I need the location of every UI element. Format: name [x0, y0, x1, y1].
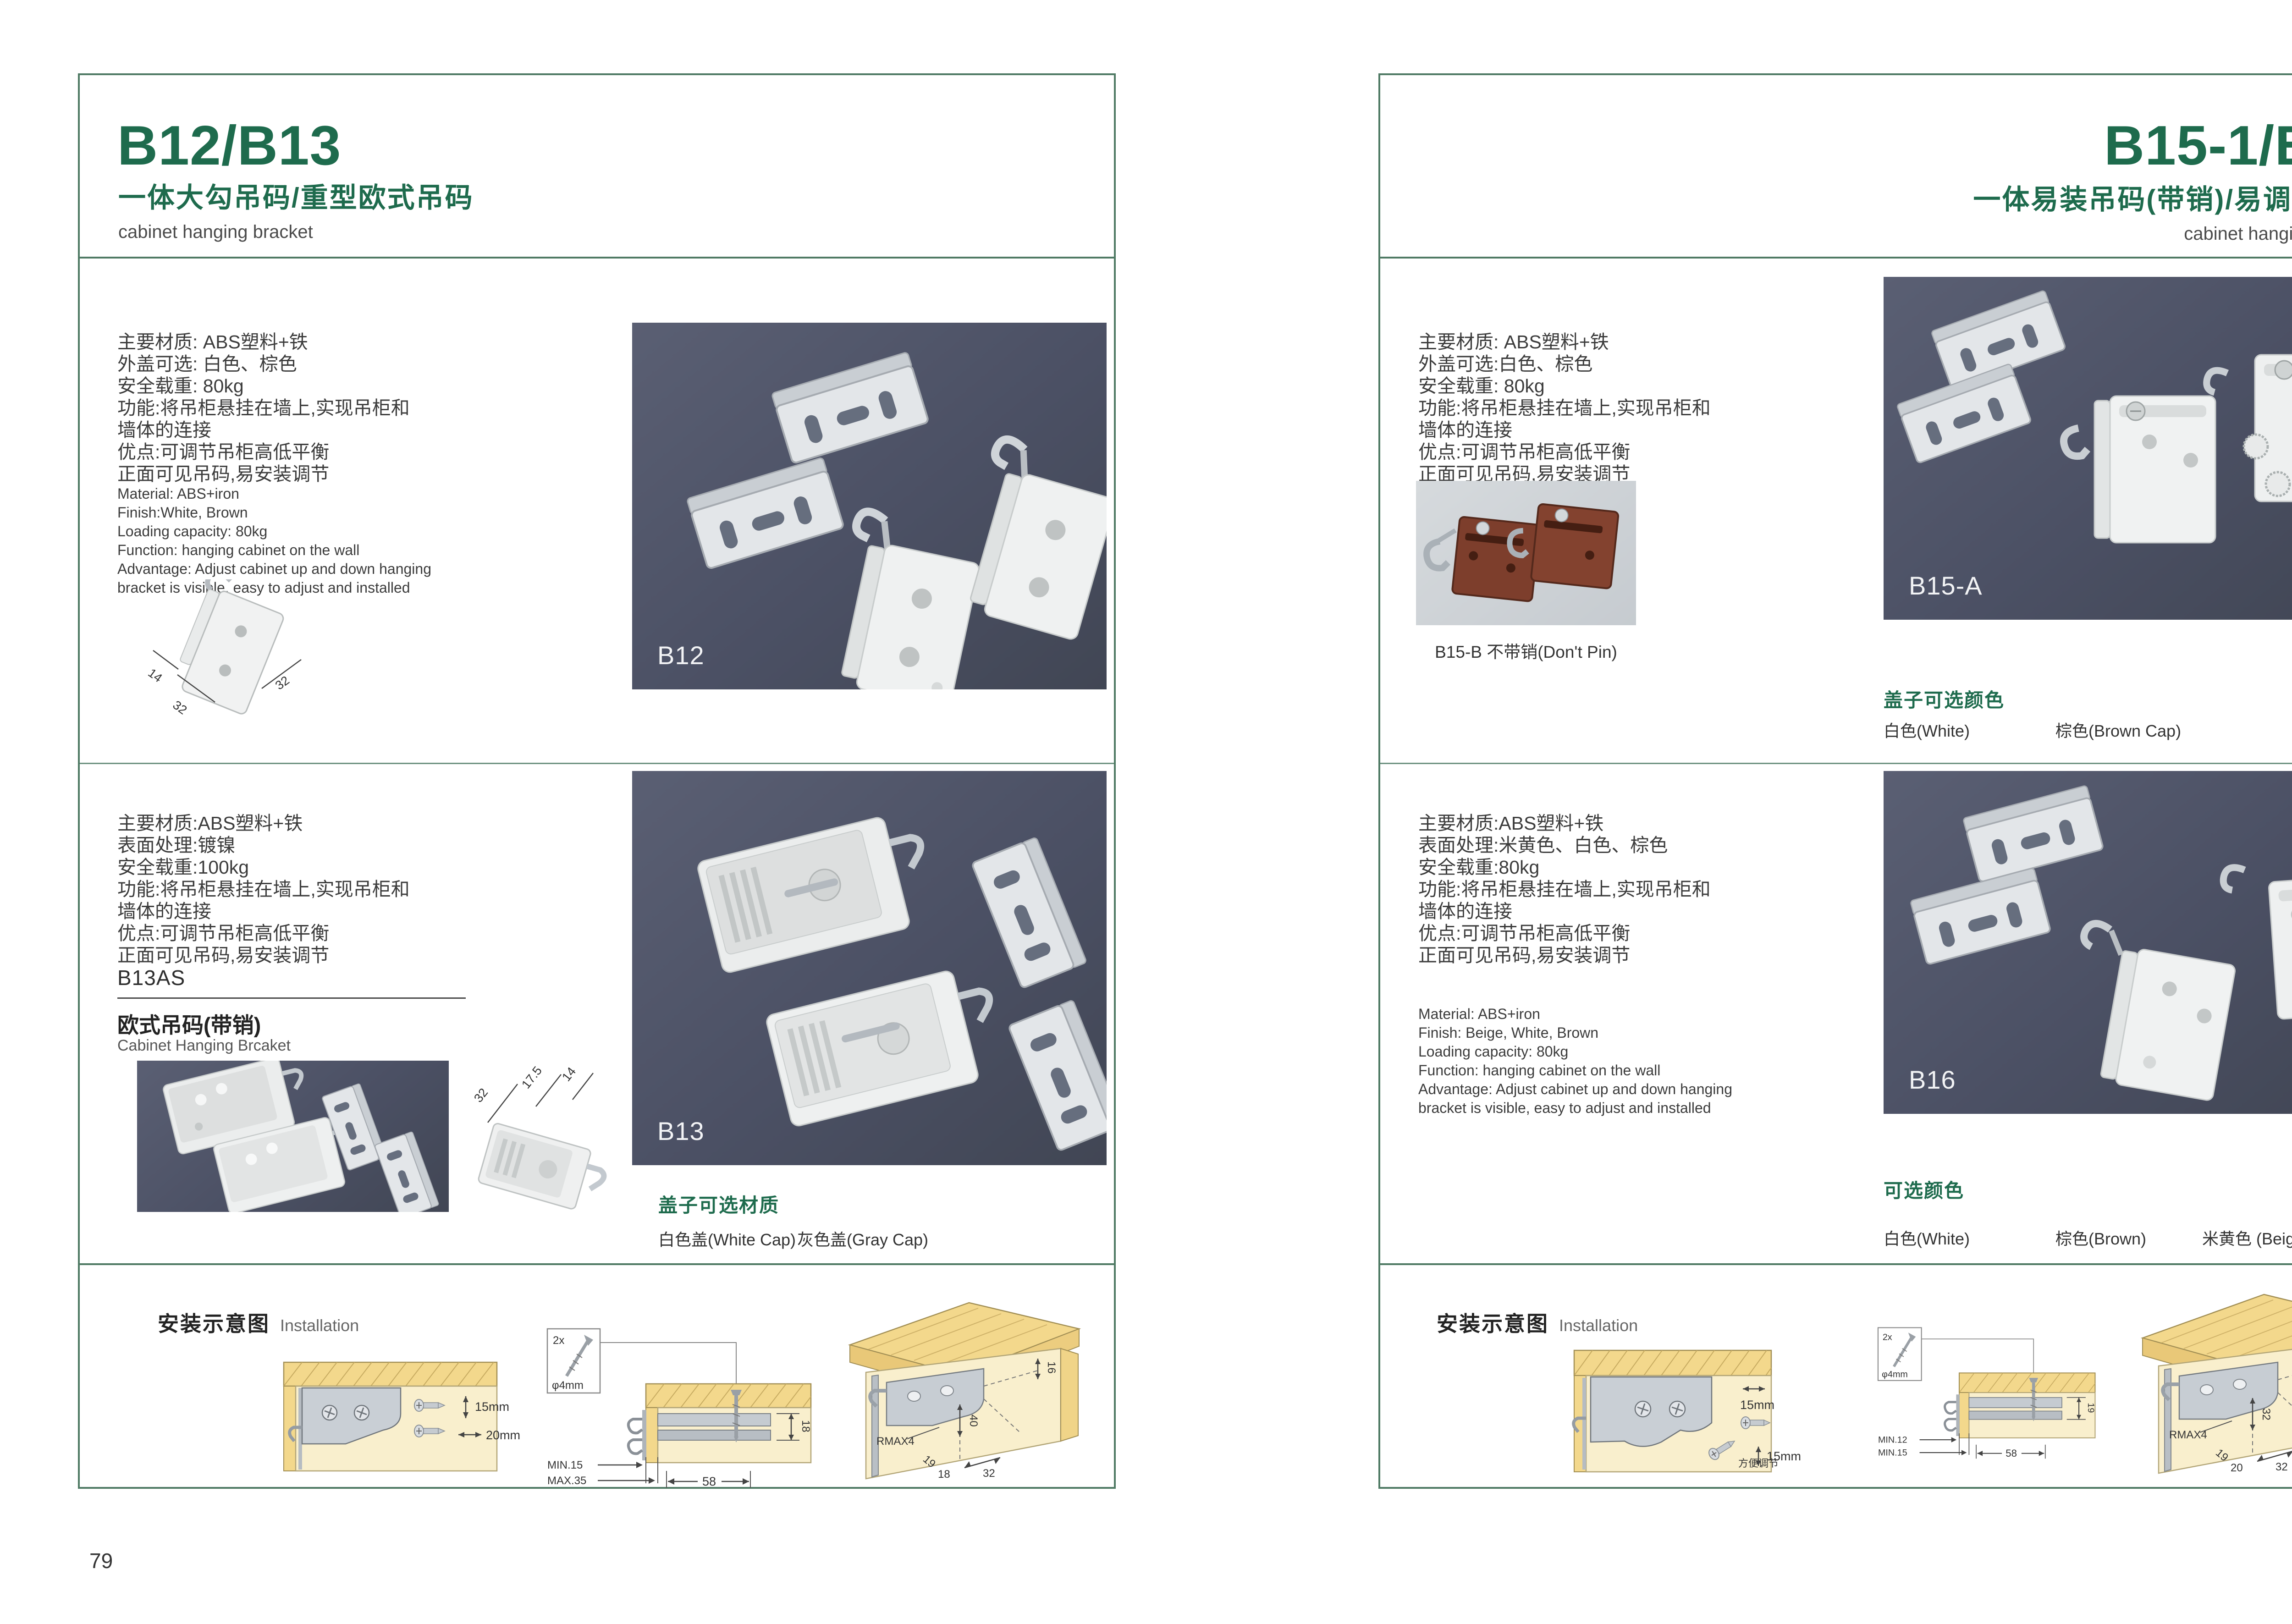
right-section-divider: [1380, 763, 2292, 764]
r-d2-min: MIN.12: [1878, 1435, 1907, 1445]
b16-options-title: 可选颜色: [1884, 1175, 1964, 1203]
b12-specs-cn: 主要材质: ABS塑料+铁 外盖可选: 白色、棕色 安全载重: 80kg 功能:…: [117, 331, 599, 485]
b15a-photo-label: B15-A: [1909, 571, 1983, 600]
installation-title-cn: 安装示意图: [1437, 1312, 1549, 1336]
l-d3-c: 32: [983, 1467, 995, 1480]
l-d1-dim1: 15mm: [475, 1400, 509, 1414]
left-page-number: 79: [89, 1548, 113, 1573]
b13as-dimension-drawing: 32 17.5 14: [463, 1054, 623, 1214]
b16-photo-label: B16: [1909, 1065, 1956, 1095]
b15-option-white: 白色(White): [1884, 718, 1970, 742]
l-d3-depth: 40: [967, 1415, 980, 1427]
b13as-dim-b: 17.5: [519, 1064, 545, 1091]
b13-specs-cn: 主要材质:ABS塑料+铁 表面处理:镀镍 安全载重:100kg 功能:将吊柜悬挂…: [117, 812, 599, 966]
installation-title-en: Installation: [280, 1316, 359, 1335]
b15-specs-cn: 主要材质: ABS塑料+铁 外盖可选:白色、棕色 安全载重: 80kg 功能:将…: [1418, 331, 1877, 485]
l-d1-dim2: 20mm: [486, 1428, 520, 1442]
l-d2-max: MAX.35: [547, 1475, 586, 1487]
b12-photo: B12: [632, 323, 1107, 689]
r-d3-b: 20: [2231, 1462, 2243, 1474]
b13-photo: B13: [632, 771, 1107, 1165]
l-d2-screw-count: 2x: [553, 1334, 564, 1347]
b13-option-gray: 灰色盖(Gray Cap): [797, 1227, 928, 1250]
page-subtitle-en: cabinet hanging bracket: [118, 223, 313, 241]
left-install-diagram-2: 2x φ4mm: [529, 1322, 841, 1492]
left-section-divider: [80, 763, 1114, 764]
b12-dim-b: 32: [170, 698, 189, 717]
b16-option-white: 白色(White): [1884, 1226, 1970, 1250]
r-d2-width: 58: [2005, 1448, 2017, 1459]
left-header-divider: [80, 257, 1114, 259]
l-d3-radius: RMAX4: [876, 1435, 915, 1448]
right-install-divider: [1380, 1263, 2292, 1265]
left-page: B12/B13 一体大勾吊码/重型欧式吊码 cabinet hanging br…: [78, 73, 1116, 1489]
r-d3-radius: RMAX4: [2169, 1429, 2207, 1441]
right-installation-title: 安装示意图Installation: [1437, 1307, 1638, 1338]
b13as-model-code: B13AS: [117, 965, 185, 990]
b16-photo: B16: [1884, 771, 2292, 1114]
right-page: B15-1/B16 一体易装吊码(带销)/易调节吊码 cabinet hangi…: [1378, 73, 2292, 1489]
r-d2-screw-count: 2x: [1883, 1332, 1892, 1343]
b13as-dim-a: 32: [471, 1086, 490, 1105]
installation-title-en: Installation: [1559, 1316, 1638, 1335]
catalog-spread: B12/B13 一体大勾吊码/重型欧式吊码 cabinet hanging br…: [0, 0, 2292, 1624]
l-d2-min: MIN.15: [547, 1459, 583, 1471]
b16-option-brown: 棕色(Brown): [2055, 1226, 2146, 1250]
l-d3-b: 18: [938, 1468, 950, 1481]
b13as-name-cn: 欧式吊码(带销): [117, 1007, 261, 1039]
left-install-diagram-3: 16 40 RMAX4 19 18 32: [822, 1281, 1097, 1487]
b12-photo-label: B12: [657, 640, 705, 670]
right-header: B15-1/B16 一体易装吊码(带销)/易调节吊码 cabinet hangi…: [1973, 117, 2292, 243]
r-d2-screw-dia: φ4mm: [1882, 1369, 1908, 1379]
b13-photo-label: B13: [657, 1116, 705, 1146]
right-install-diagram-1: 15mm 15mm 方便调节: [1560, 1345, 1872, 1482]
b12-dim-a: 14: [145, 666, 165, 685]
b13as-photo: [137, 1061, 449, 1212]
r-d1-dim1: 15mm: [1740, 1398, 1774, 1412]
r-d3-depth: 32: [2260, 1408, 2272, 1420]
left-installation-title: 安装示意图Installation: [158, 1307, 359, 1338]
r-d1-note: 方便调节: [1738, 1458, 1779, 1469]
r-d3-c: 32: [2275, 1461, 2288, 1473]
right-install-diagram-2: 2x φ4mm: [1863, 1322, 2120, 1462]
b15-option-brown: 棕色(Brown Cap): [2055, 718, 2181, 742]
page-subtitle-cn: 一体大勾吊码/重型欧式吊码: [118, 184, 474, 212]
b15-options-title: 盖子可选颜色: [1884, 685, 2005, 713]
b13-option-white: 白色盖(White Cap): [658, 1227, 796, 1250]
l-d3-edge: 16: [1045, 1361, 1058, 1374]
l-d2-side: 18: [799, 1420, 812, 1432]
right-header-divider: [1380, 257, 2292, 259]
b13as-underline: [117, 997, 466, 999]
b15a-photo: B15-A: [1884, 277, 2292, 620]
b16-option-beige: 米黄色 (Beige): [2202, 1226, 2292, 1250]
r-d2-side: 19: [2086, 1403, 2096, 1413]
b13as-dim-c: 14: [559, 1065, 579, 1084]
page-title: B15-1/B16: [1973, 117, 2292, 173]
l-d2-width: 58: [702, 1475, 716, 1488]
left-install-diagram-1: 15mm 20mm: [277, 1354, 524, 1478]
b13-options-title: 盖子可选材质: [658, 1190, 779, 1218]
page-subtitle-en: cabinet hanging bracket: [1973, 225, 2292, 243]
left-install-divider: [80, 1263, 1114, 1265]
b16-specs-en: Material: ABS+iron Finish: Beige, White,…: [1418, 1005, 1895, 1118]
l-d2-screw-dia: φ4mm: [552, 1379, 584, 1392]
b12-dimension-drawing: 14 32 32: [128, 579, 325, 733]
b15b-caption: B15-B 不带销(Don't Pin): [1416, 638, 1636, 663]
b13as-name-en: Cabinet Hanging Brcaket: [117, 1037, 291, 1055]
b15b-photo: [1416, 481, 1636, 625]
b12-dim-c: 32: [273, 673, 292, 693]
right-install-diagram-3: 30 32 RMAX4 19 20 32: [2106, 1272, 2292, 1485]
b16-specs-cn: 主要材质:ABS塑料+铁 表面处理:米黄色、白色、棕色 安全载重:80kg 功能…: [1418, 812, 1877, 966]
page-subtitle-cn: 一体易装吊码(带销)/易调节吊码: [1973, 186, 2292, 214]
installation-title-cn: 安装示意图: [158, 1312, 270, 1336]
page-title: B12/B13: [117, 117, 342, 173]
r-d2-max: MIN.15: [1878, 1448, 1907, 1458]
